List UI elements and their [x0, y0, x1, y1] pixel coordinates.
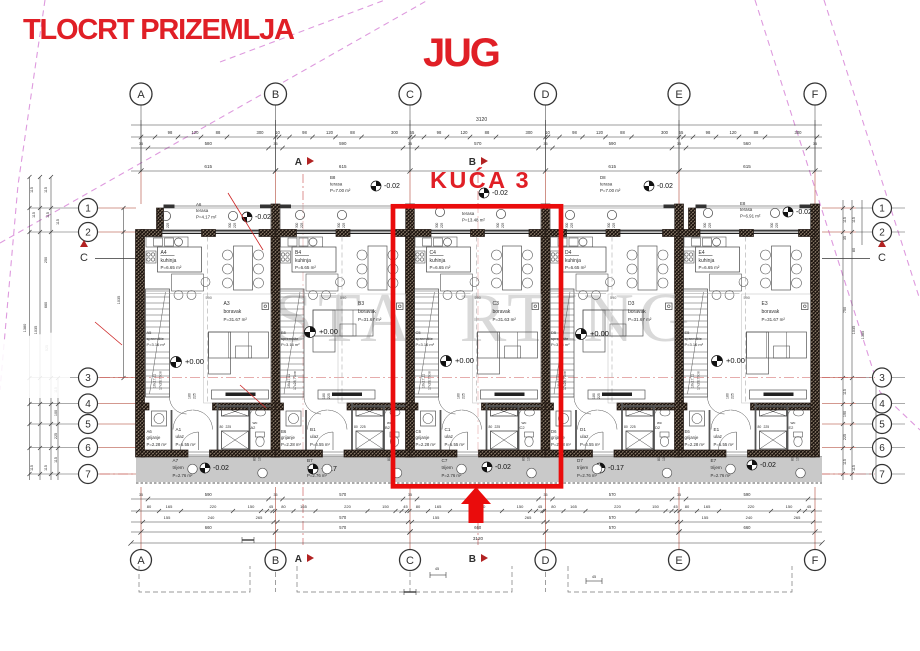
svg-text:45: 45 [403, 504, 408, 509]
svg-text:225: 225 [731, 393, 735, 399]
svg-text:225: 225 [775, 222, 779, 228]
svg-text:3: 3 [879, 373, 885, 384]
svg-text:225: 225 [462, 393, 466, 399]
svg-text:P=6.55 m²: P=6.55 m² [714, 442, 735, 447]
svg-text:115: 115 [32, 212, 36, 218]
svg-text:80: 80 [624, 425, 628, 429]
svg-text:80: 80 [791, 457, 795, 461]
svg-text:115: 115 [44, 465, 48, 471]
svg-text:80: 80 [758, 425, 762, 429]
svg-text:B3: B3 [358, 301, 364, 307]
svg-text:4: 4 [85, 399, 91, 410]
svg-text:P=2.76 m²: P=2.76 m² [307, 473, 328, 478]
svg-text:45: 45 [269, 504, 274, 509]
svg-text:615: 615 [204, 164, 212, 169]
svg-text:165: 165 [570, 504, 577, 509]
svg-text:225: 225 [764, 425, 770, 429]
svg-text:590: 590 [475, 296, 481, 300]
svg-text:17x28,77cm: 17x28,77cm [293, 371, 297, 390]
svg-text:5: 5 [879, 420, 885, 431]
svg-text:80: 80 [281, 504, 286, 509]
svg-text:165: 165 [300, 504, 307, 509]
svg-text:35: 35 [408, 142, 412, 146]
svg-text:17x28,77cm: 17x28,77cm [697, 371, 701, 390]
svg-text:-0.02: -0.02 [213, 465, 229, 472]
svg-text:80: 80 [147, 504, 152, 509]
svg-text:grijanje: grijanje [147, 435, 161, 440]
svg-text:115: 115 [852, 217, 856, 223]
svg-text:D2: D2 [655, 425, 661, 430]
svg-text:ulaz: ulaz [310, 434, 319, 439]
svg-text:B: B [272, 89, 279, 101]
svg-text:615: 615 [339, 164, 347, 169]
svg-text:35: 35 [677, 493, 681, 497]
svg-text:98: 98 [168, 130, 173, 135]
svg-text:80: 80 [416, 504, 421, 509]
svg-text:300: 300 [607, 222, 611, 228]
svg-text:P=3.16 m²: P=3.16 m² [147, 342, 166, 347]
svg-text:80: 80 [685, 504, 690, 509]
svg-text:5: 5 [85, 420, 91, 431]
svg-text:300: 300 [161, 222, 165, 228]
svg-text:kuhinja: kuhinja [565, 258, 581, 264]
svg-text:3120: 3120 [476, 117, 487, 123]
svg-text:grijanje: grijanje [416, 435, 430, 440]
svg-text:-0.02: -0.02 [657, 183, 673, 190]
svg-text:88: 88 [754, 130, 759, 135]
svg-text:6: 6 [85, 443, 91, 454]
svg-text:165: 165 [704, 504, 711, 509]
svg-text:35: 35 [843, 236, 847, 240]
svg-text:A2: A2 [251, 425, 257, 430]
svg-text:P=6.55 m²: P=6.55 m² [445, 442, 466, 447]
svg-text:35: 35 [544, 493, 548, 497]
svg-text:F: F [812, 555, 819, 567]
svg-text:A: A [137, 555, 145, 567]
svg-text:180: 180 [322, 393, 326, 399]
svg-text:165: 165 [166, 504, 173, 509]
svg-text:45: 45 [673, 504, 678, 509]
svg-text:300: 300 [526, 130, 534, 135]
svg-text:P=13.48 m²: P=13.48 m² [462, 218, 485, 223]
svg-text:P=7.00 m²: P=7.00 m² [600, 188, 621, 193]
svg-text:590: 590 [339, 141, 347, 146]
svg-text:80: 80 [522, 457, 526, 461]
svg-text:+0.00: +0.00 [726, 356, 745, 365]
svg-text:180: 180 [457, 393, 461, 399]
svg-text:17x28,77cm: 17x28,77cm [428, 371, 432, 390]
svg-text:1035: 1035 [117, 296, 121, 304]
svg-text:F: F [812, 89, 819, 101]
svg-text:C7: C7 [442, 458, 448, 463]
svg-text:+0.00: +0.00 [590, 329, 609, 338]
svg-text:E: E [675, 555, 682, 567]
svg-text:P=7.00 m²: P=7.00 m² [330, 188, 351, 193]
svg-text:17x28,77cm: 17x28,77cm [563, 371, 567, 390]
svg-text:2: 2 [85, 228, 91, 239]
svg-text:E: E [675, 89, 682, 101]
svg-text:D6: D6 [551, 429, 557, 434]
svg-text:B2: B2 [385, 425, 391, 430]
svg-text:80: 80 [354, 425, 358, 429]
svg-text:P=31.67 m²: P=31.67 m² [628, 317, 652, 322]
svg-text:225: 225 [501, 222, 505, 228]
svg-text:590: 590 [206, 296, 212, 300]
svg-text:590: 590 [340, 296, 346, 300]
svg-text:kuhinja: kuhinja [430, 258, 446, 264]
svg-text:98: 98 [437, 130, 442, 135]
svg-text:trijem: trijem [173, 465, 184, 470]
svg-text:-0.02: -0.02 [760, 462, 776, 469]
svg-text:A6: A6 [196, 202, 202, 207]
svg-text:100: 100 [258, 455, 262, 461]
svg-text:225: 225 [630, 425, 636, 429]
svg-text:265: 265 [525, 515, 532, 520]
svg-text:trijem: trijem [577, 465, 588, 470]
svg-text:7: 7 [85, 470, 91, 481]
svg-text:D: D [542, 555, 550, 567]
svg-text:trijem: trijem [442, 465, 453, 470]
svg-text:ulaz: ulaz [714, 434, 723, 439]
svg-text:P=6.65 m²: P=6.65 m² [161, 265, 182, 270]
svg-text:300: 300 [295, 222, 299, 228]
svg-text:2: 2 [879, 228, 885, 239]
svg-text:ulaz: ulaz [580, 434, 589, 439]
svg-text:1385: 1385 [861, 331, 865, 339]
svg-text:240: 240 [208, 515, 215, 520]
svg-text:P=31.67 m²: P=31.67 m² [762, 317, 786, 322]
svg-text:E7: E7 [711, 458, 717, 463]
svg-text:115: 115 [843, 389, 847, 395]
svg-text:225: 225 [166, 222, 170, 228]
svg-text:115: 115 [56, 219, 60, 225]
svg-text:P=2.76 m²: P=2.76 m² [711, 473, 732, 478]
svg-text:E8: E8 [740, 201, 746, 206]
svg-text:225: 225 [193, 393, 197, 399]
svg-text:120: 120 [730, 130, 738, 135]
svg-text:E1: E1 [714, 427, 720, 432]
svg-text:225: 225 [226, 425, 232, 429]
svg-text:115: 115 [843, 217, 847, 223]
svg-text:A4: A4 [161, 250, 167, 256]
svg-text:P=3.16 m²: P=3.16 m² [685, 342, 704, 347]
svg-text:-0.02: -0.02 [384, 183, 400, 190]
svg-text:TLOCRT PRIZEMLJA: TLOCRT PRIZEMLJA [23, 14, 295, 46]
svg-text:spremište: spremište [147, 336, 165, 341]
svg-text:225: 225 [360, 425, 366, 429]
svg-text:B7: B7 [307, 458, 313, 463]
svg-text:45: 45 [807, 504, 812, 509]
svg-text:grijanje: grijanje [685, 435, 699, 440]
svg-text:660: 660 [744, 525, 752, 530]
svg-text:C: C [878, 252, 886, 264]
svg-text:98: 98 [302, 130, 307, 135]
svg-text:+0.00: +0.00 [185, 357, 204, 366]
svg-text:660: 660 [44, 302, 48, 308]
svg-text:P=3.16 m²: P=3.16 m² [416, 342, 435, 347]
svg-text:35: 35 [408, 493, 412, 497]
svg-text:150: 150 [652, 504, 659, 509]
svg-text:225: 225 [54, 433, 58, 439]
svg-text:B1: B1 [310, 427, 316, 432]
svg-text:35: 35 [274, 493, 278, 497]
svg-text:JUG: JUG [423, 31, 499, 75]
svg-text:88: 88 [216, 130, 221, 135]
svg-text:120: 120 [596, 130, 604, 135]
svg-text:B: B [272, 555, 279, 567]
svg-text:16x17,11: 16x17,11 [691, 374, 695, 388]
svg-text:P=2.28 m²: P=2.28 m² [281, 442, 302, 447]
svg-text:-0.02: -0.02 [255, 214, 271, 221]
svg-text:88: 88 [620, 130, 625, 135]
svg-text:580: 580 [205, 141, 213, 146]
svg-text:300: 300 [565, 222, 569, 228]
svg-text:E2: E2 [789, 425, 795, 430]
svg-text:300: 300 [795, 130, 803, 135]
svg-text:spremište: spremište [416, 336, 434, 341]
svg-text:D1: D1 [580, 427, 586, 432]
svg-text:120: 120 [326, 130, 334, 135]
svg-text:590: 590 [609, 141, 617, 146]
svg-text:100: 100 [796, 455, 800, 461]
svg-text:D8: D8 [600, 175, 606, 180]
svg-text:P=3.16 m²: P=3.16 m² [281, 342, 300, 347]
svg-text:300: 300 [496, 222, 500, 228]
svg-text:155: 155 [433, 515, 440, 520]
svg-text:C4: C4 [430, 250, 437, 256]
svg-text:D4: D4 [565, 250, 572, 256]
svg-text:660: 660 [205, 525, 213, 530]
svg-text:590: 590 [610, 296, 616, 300]
svg-text:C: C [406, 555, 414, 567]
svg-text:225: 225 [327, 393, 331, 399]
svg-text:265: 265 [794, 515, 801, 520]
svg-text:225: 225 [300, 222, 304, 228]
svg-text:220: 220 [210, 504, 217, 509]
svg-text:225: 225 [495, 425, 501, 429]
svg-text:kuhinja: kuhinja [161, 258, 177, 264]
svg-text:A: A [295, 157, 302, 168]
svg-text:P=6.65 m²: P=6.65 m² [430, 265, 451, 270]
svg-text:terasa: terasa [600, 182, 613, 187]
svg-text:boravak: boravak [762, 309, 780, 315]
svg-text:590: 590 [744, 492, 752, 497]
svg-text:P=6.55 m²: P=6.55 m² [580, 442, 601, 447]
svg-text:570: 570 [609, 525, 617, 530]
svg-text:P=6.55 m²: P=6.55 m² [176, 442, 197, 447]
svg-text:B8: B8 [330, 175, 336, 180]
svg-text:16x17,11: 16x17,11 [287, 374, 291, 388]
svg-text:ulaz: ulaz [445, 434, 454, 439]
svg-text:150: 150 [786, 504, 793, 509]
svg-text:spremište: spremište [281, 336, 299, 341]
svg-text:88: 88 [350, 130, 355, 135]
svg-text:A3: A3 [224, 301, 230, 307]
svg-text:98: 98 [572, 130, 577, 135]
svg-text:35: 35 [813, 142, 817, 146]
svg-text:P=2.28 m²: P=2.28 m² [416, 442, 437, 447]
svg-text:P=2.76 m²: P=2.76 m² [577, 473, 598, 478]
svg-text:C1: C1 [445, 427, 451, 432]
svg-text:100: 100 [662, 455, 666, 461]
svg-text:220: 220 [748, 504, 755, 509]
svg-text:225: 225 [342, 222, 346, 228]
svg-text:P=2.28 m²: P=2.28 m² [147, 442, 168, 447]
svg-text:150: 150 [517, 504, 524, 509]
svg-text:150: 150 [248, 504, 255, 509]
svg-text:225: 225 [843, 434, 847, 440]
svg-text:B5: B5 [281, 330, 287, 335]
svg-text:P=31.67 m²: P=31.67 m² [224, 317, 248, 322]
svg-text:115: 115 [30, 465, 34, 471]
svg-text:265: 265 [256, 515, 263, 520]
svg-text:660: 660 [474, 525, 482, 530]
svg-text:180: 180 [188, 393, 192, 399]
svg-text:55: 55 [679, 130, 684, 135]
svg-text:kuhinja: kuhinja [295, 258, 311, 264]
svg-text:180: 180 [592, 393, 596, 399]
svg-text:+0.00: +0.00 [455, 356, 474, 365]
svg-text:KUĆA 3: KUĆA 3 [430, 166, 531, 193]
svg-text:A: A [137, 89, 145, 101]
svg-text:220: 220 [614, 504, 621, 509]
svg-text:1035: 1035 [34, 326, 38, 334]
svg-text:terasa: terasa [740, 207, 753, 212]
svg-text:55: 55 [410, 130, 415, 135]
svg-text:300: 300 [228, 222, 232, 228]
svg-text:1380: 1380 [23, 324, 27, 332]
svg-text:300: 300 [391, 130, 399, 135]
svg-text:615: 615 [743, 164, 751, 169]
svg-text:1: 1 [879, 204, 885, 215]
svg-text:150: 150 [382, 504, 389, 509]
svg-text:P=2.76 m²: P=2.76 m² [173, 473, 194, 478]
svg-text:570: 570 [609, 492, 617, 497]
svg-text:80: 80 [852, 248, 856, 252]
svg-text:120: 120 [461, 130, 469, 135]
svg-text:570: 570 [609, 515, 617, 520]
svg-text:P=6.65 m²: P=6.65 m² [699, 265, 720, 270]
svg-text:165: 165 [435, 504, 442, 509]
svg-text:560: 560 [743, 141, 751, 146]
svg-text:D7: D7 [577, 458, 583, 463]
svg-text:16x17,11: 16x17,11 [153, 374, 157, 388]
svg-text:grijanje: grijanje [281, 435, 295, 440]
svg-text:300: 300 [661, 130, 669, 135]
svg-text:10: 10 [275, 130, 280, 135]
svg-text:B6: B6 [281, 429, 287, 434]
svg-text:P=6.65 m²: P=6.65 m² [295, 265, 316, 270]
svg-text:35: 35 [139, 493, 143, 497]
svg-text:4: 4 [879, 399, 885, 410]
svg-text:C: C [80, 252, 88, 264]
svg-text:C6: C6 [416, 429, 422, 434]
svg-text:-0.17: -0.17 [608, 465, 624, 472]
svg-text:P=6.91 m²: P=6.91 m² [740, 213, 761, 218]
svg-text:80: 80 [657, 457, 661, 461]
svg-text:B4: B4 [295, 250, 301, 256]
svg-text:35: 35 [139, 142, 143, 146]
svg-text:A5: A5 [147, 330, 153, 335]
svg-text:590: 590 [205, 492, 213, 497]
svg-text:45: 45 [435, 567, 439, 571]
svg-text:C2: C2 [520, 425, 526, 430]
svg-text:E5: E5 [685, 330, 691, 335]
svg-text:E6: E6 [685, 429, 691, 434]
svg-text:570: 570 [474, 141, 482, 146]
svg-text:P=2.28 m²: P=2.28 m² [685, 442, 706, 447]
svg-text:115: 115 [852, 465, 856, 471]
svg-text:D5: D5 [551, 330, 557, 335]
svg-text:570: 570 [339, 492, 347, 497]
svg-text:C: C [406, 89, 414, 101]
svg-text:P=6.55 m²: P=6.55 m² [310, 442, 331, 447]
svg-text:220: 220 [344, 504, 351, 509]
svg-text:190: 190 [843, 411, 847, 417]
svg-text:80: 80 [489, 425, 493, 429]
svg-text:A1: A1 [176, 427, 182, 432]
svg-text:120: 120 [192, 130, 200, 135]
svg-text:100: 100 [54, 410, 58, 416]
svg-text:10: 10 [545, 130, 550, 135]
svg-text:155: 155 [164, 515, 171, 520]
svg-text:225: 225 [708, 222, 712, 228]
svg-text:P=4.17 m²: P=4.17 m² [196, 214, 217, 219]
svg-text:+0.00: +0.00 [319, 327, 338, 336]
svg-text:boravak: boravak [493, 309, 511, 315]
svg-text:3120: 3120 [473, 536, 484, 541]
svg-text:terasa: terasa [196, 208, 209, 213]
svg-text:trijem: trijem [711, 465, 722, 470]
svg-text:7: 7 [879, 470, 885, 481]
svg-text:45: 45 [538, 504, 543, 509]
svg-text:225: 225 [440, 222, 444, 228]
svg-text:D3: D3 [628, 301, 635, 307]
svg-text:A7: A7 [173, 458, 179, 463]
svg-text:6: 6 [879, 443, 885, 454]
svg-text:spremište: spremište [685, 336, 703, 341]
svg-text:-0.02: -0.02 [495, 464, 511, 471]
svg-text:750: 750 [843, 307, 847, 313]
svg-text:D: D [542, 89, 550, 101]
svg-text:80: 80 [253, 457, 257, 461]
svg-text:P=6.65 m²: P=6.65 m² [565, 265, 586, 270]
svg-text:240: 240 [746, 515, 753, 520]
svg-text:A: A [295, 554, 302, 565]
svg-text:C3: C3 [493, 301, 500, 307]
svg-text:115: 115 [46, 212, 50, 218]
svg-text:16x17,11: 16x17,11 [422, 374, 426, 388]
svg-text:300: 300 [337, 222, 341, 228]
svg-text:C5: C5 [416, 330, 422, 335]
svg-text:590: 590 [744, 296, 750, 300]
svg-text:225: 225 [612, 222, 616, 228]
svg-text:225: 225 [233, 222, 237, 228]
svg-text:155: 155 [702, 515, 709, 520]
svg-text:570: 570 [339, 515, 347, 520]
svg-text:P=31.67 m²: P=31.67 m² [358, 317, 382, 322]
svg-text:115: 115 [30, 187, 34, 193]
svg-text:300: 300 [703, 222, 707, 228]
svg-text:boravak: boravak [224, 309, 242, 315]
svg-text:35: 35 [273, 142, 277, 146]
svg-text:45: 45 [592, 575, 596, 579]
svg-text:1: 1 [85, 204, 91, 215]
svg-text:180: 180 [726, 393, 730, 399]
svg-text:80: 80 [220, 425, 224, 429]
svg-text:615: 615 [608, 164, 616, 169]
svg-text:35: 35 [543, 142, 547, 146]
